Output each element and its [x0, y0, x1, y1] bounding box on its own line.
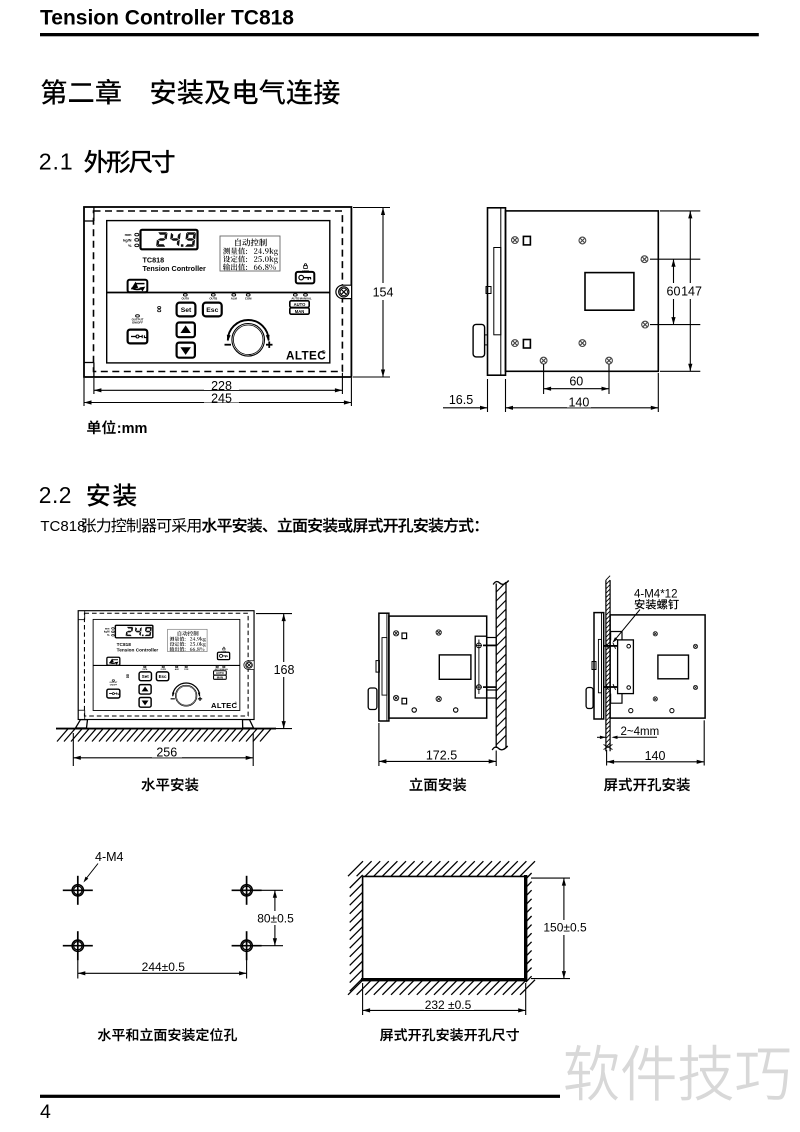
svg-text:150±0.5: 150±0.5 — [543, 921, 587, 935]
svg-text:154: 154 — [373, 286, 394, 300]
svg-text:4: 4 — [40, 1101, 51, 1123]
svg-text:2.2: 2.2 — [39, 482, 72, 508]
svg-text:2.1: 2.1 — [39, 148, 74, 174]
svg-text:256: 256 — [156, 745, 177, 759]
svg-text:4-M4*12: 4-M4*12 — [634, 589, 677, 601]
svg-text:Tension Controller TC818: Tension Controller TC818 — [40, 6, 294, 29]
svg-text::mm: :mm — [117, 421, 148, 437]
svg-text:232 ±0.5: 232 ±0.5 — [425, 998, 472, 1012]
svg-text:4-M4: 4-M4 — [95, 850, 124, 864]
svg-text:140: 140 — [645, 749, 666, 763]
svg-text:TC818: TC818 — [40, 518, 85, 535]
svg-text:168: 168 — [274, 663, 295, 677]
svg-text:80±0.5: 80±0.5 — [257, 911, 294, 925]
svg-text:60: 60 — [667, 285, 681, 299]
svg-text:16.5: 16.5 — [449, 393, 473, 407]
svg-text:245: 245 — [211, 391, 232, 405]
svg-text:2~4mm: 2~4mm — [621, 726, 660, 738]
svg-text:147: 147 — [681, 285, 702, 299]
svg-text:172.5: 172.5 — [426, 749, 457, 763]
svg-text:60: 60 — [569, 375, 583, 389]
svg-text:140: 140 — [568, 395, 589, 409]
svg-text:244±0.5: 244±0.5 — [142, 960, 186, 974]
